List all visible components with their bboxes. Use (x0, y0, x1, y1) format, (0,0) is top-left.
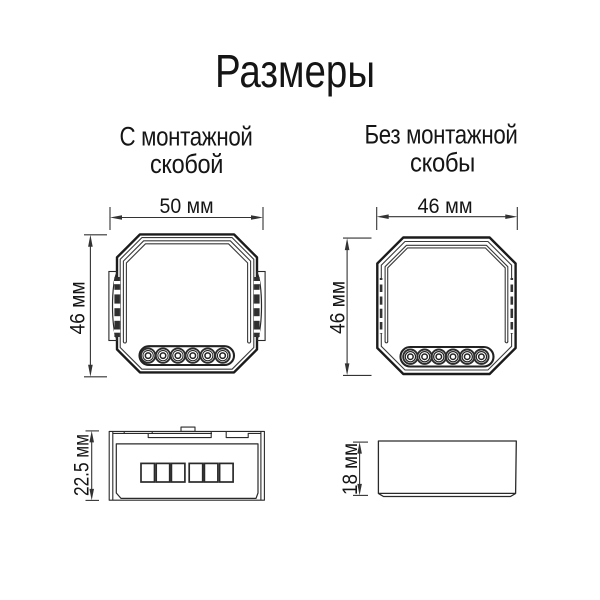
svg-text:50 мм: 50 мм (160, 194, 214, 218)
svg-text:46 мм: 46 мм (326, 281, 350, 334)
svg-text:46 мм: 46 мм (66, 282, 90, 335)
svg-text:22.5 мм: 22.5 мм (70, 434, 94, 496)
svg-text:скобой: скобой (150, 149, 223, 179)
svg-text:Без монтажной: Без монтажной (365, 120, 518, 150)
svg-text:С монтажной: С монтажной (120, 122, 253, 152)
svg-text:Размеры: Размеры (215, 45, 375, 97)
svg-text:46 мм: 46 мм (418, 194, 473, 218)
svg-text:скобы: скобы (410, 148, 475, 178)
